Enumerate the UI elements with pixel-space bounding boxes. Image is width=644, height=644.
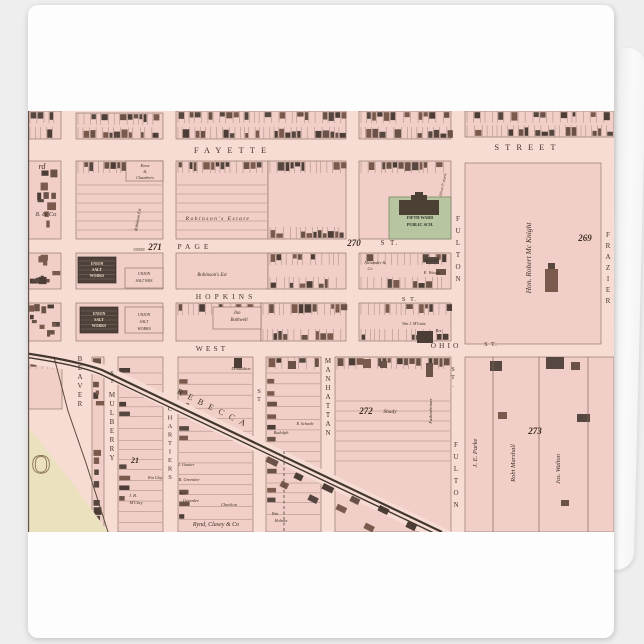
map-block-outline — [465, 357, 614, 532]
map-building — [226, 112, 232, 118]
ward-map-svg: FAYETTESTREETPAGES T.HOPKINSS T.WESTOHIO… — [28, 111, 614, 532]
map-block — [359, 111, 453, 139]
map-block-outline — [268, 161, 346, 239]
map-building — [96, 390, 99, 394]
map-building — [292, 304, 298, 313]
map-house — [548, 263, 555, 269]
map-building — [429, 112, 435, 118]
map-building — [29, 305, 34, 311]
map-building — [128, 114, 133, 119]
map-label: SALT WKS — [136, 279, 153, 283]
map-block — [176, 253, 268, 289]
map-building — [41, 183, 48, 191]
map-building — [327, 333, 333, 340]
map-building — [119, 402, 126, 407]
map-building — [340, 133, 346, 138]
map-block — [28, 303, 61, 341]
map-building — [372, 112, 376, 120]
map-building — [592, 131, 596, 136]
map-building — [30, 315, 34, 319]
map-building — [442, 254, 446, 262]
map-block — [176, 161, 268, 239]
map-building — [349, 358, 355, 365]
map-building — [278, 331, 281, 340]
map-building — [549, 130, 554, 136]
map-building — [319, 284, 324, 288]
map-building — [419, 304, 424, 313]
map-building — [278, 162, 285, 170]
map-block — [268, 253, 346, 289]
map-building — [245, 133, 248, 138]
map-house — [490, 361, 502, 371]
map-building — [330, 132, 334, 138]
map-building — [301, 232, 305, 238]
map-block — [465, 357, 614, 532]
map-label: FRAZIER — [605, 231, 610, 305]
map-building — [440, 134, 446, 138]
map-building — [335, 304, 339, 312]
map-building — [271, 230, 275, 238]
map-building — [43, 192, 48, 199]
map-building — [139, 114, 142, 119]
map-building — [223, 130, 228, 138]
map-building — [313, 232, 316, 238]
map-building — [121, 129, 127, 137]
map-label: J. E. Parke — [472, 438, 479, 467]
map-building — [426, 281, 432, 287]
map-building — [101, 114, 107, 120]
map-building — [226, 162, 230, 167]
map-label: Robinson's Estate — [185, 216, 251, 222]
map-label: Charlton — [221, 502, 238, 507]
map-building — [276, 358, 281, 363]
map-label: Chambers — [136, 175, 154, 180]
map-label: Hon. Robert Mc Knight — [524, 222, 533, 295]
map-label: UNION — [133, 248, 145, 252]
map-label: 271 — [147, 242, 162, 252]
map-building — [269, 358, 275, 367]
map-building — [269, 304, 274, 313]
map-building — [367, 112, 371, 119]
map-block — [92, 357, 104, 532]
map-label: S T. — [380, 239, 399, 247]
map-label: UNION — [91, 262, 104, 266]
map-label: R. Greenlee — [178, 477, 200, 482]
map-building — [424, 112, 428, 116]
map-label: FAYETTE — [194, 145, 272, 155]
map-label: UNION — [93, 312, 106, 316]
map-building — [369, 162, 375, 170]
map-building — [329, 112, 334, 121]
map-building — [41, 306, 46, 313]
map-building — [393, 280, 399, 288]
map-building — [153, 133, 159, 138]
map-building — [119, 476, 130, 481]
map-building — [508, 129, 513, 135]
map-label: J. B. — [129, 493, 137, 498]
product-mockup: FAYETTESTREETPAGES T.HOPKINSS T.WESTOHIO… — [0, 0, 644, 644]
map-building — [203, 162, 210, 169]
map-building — [398, 162, 403, 169]
map-label: OHIO — [431, 341, 462, 350]
map-building — [199, 304, 205, 311]
map-building — [357, 358, 363, 365]
map-building — [340, 232, 344, 237]
map-building — [307, 281, 313, 288]
map-label: 269 — [577, 233, 592, 243]
map-building — [393, 162, 397, 167]
map-building — [598, 128, 601, 135]
map-building — [566, 127, 570, 136]
map-building — [271, 283, 276, 288]
map-building — [428, 131, 432, 137]
map-label: Wm J. M'Guire — [402, 322, 426, 326]
map-building — [372, 129, 378, 138]
map-label: 272 — [358, 406, 373, 416]
map-building — [46, 221, 49, 228]
map-building — [257, 162, 261, 167]
map-block — [268, 161, 346, 239]
greeting-card: FAYETTESTREETPAGES T.HOPKINSS T.WESTOHIO… — [28, 5, 614, 638]
map-building — [267, 391, 274, 396]
map-building — [561, 112, 567, 118]
map-building — [333, 162, 339, 170]
map-label: 8. & Co — [36, 211, 58, 218]
map-building — [419, 112, 422, 120]
map-building — [230, 133, 234, 138]
map-building — [397, 358, 403, 364]
map-building — [420, 162, 423, 169]
map-building — [84, 162, 88, 167]
map-label: 273 — [527, 426, 542, 436]
map-building — [190, 162, 193, 169]
map-building — [280, 112, 285, 118]
map-building — [47, 129, 52, 137]
map-label: Rob — [178, 491, 187, 496]
map-building — [388, 279, 392, 288]
map-label: Jno — [234, 311, 242, 316]
map-building — [315, 358, 319, 367]
map-building — [34, 304, 40, 311]
map-label: WORKS — [137, 326, 150, 331]
map-building — [256, 130, 259, 137]
map-school-building — [415, 192, 423, 196]
map-block — [28, 161, 61, 239]
map-label: Res. — [435, 329, 443, 333]
map-building — [114, 132, 120, 138]
map-label: S T. — [484, 342, 497, 348]
map-label: HOPKINS — [196, 292, 257, 301]
map-print: FAYETTESTREETPAGES T.HOPKINSS T.WESTOHIO… — [28, 111, 614, 532]
map-building — [179, 426, 189, 431]
map-building — [395, 129, 401, 138]
map-building — [300, 284, 305, 288]
map-building — [141, 132, 144, 138]
map-building — [50, 170, 57, 178]
map-building — [444, 358, 450, 365]
map-building — [94, 457, 99, 464]
map-label: STREET — [494, 142, 561, 152]
map-block-outline — [266, 357, 321, 532]
map-building — [448, 130, 453, 138]
map-building — [267, 414, 276, 419]
map-building — [338, 358, 344, 366]
map-block — [176, 111, 346, 139]
map-building — [271, 254, 275, 262]
map-house — [426, 363, 433, 377]
map-label: Wm Clay — [148, 475, 163, 480]
map-label: PAGE — [178, 242, 213, 251]
map-label: Shady — [383, 409, 397, 415]
map-building — [129, 132, 132, 138]
map-building — [211, 162, 214, 170]
map-building — [190, 112, 194, 117]
map-block — [465, 163, 601, 344]
map-building — [94, 470, 99, 475]
map-block — [76, 113, 163, 139]
map-building — [436, 162, 442, 167]
map-building — [425, 304, 428, 308]
map-building — [94, 481, 99, 488]
map-building — [285, 132, 290, 137]
map-building — [362, 335, 365, 340]
map-building — [179, 379, 187, 384]
map-building — [418, 133, 422, 138]
map-building — [437, 334, 441, 340]
map-building — [179, 112, 184, 119]
map-building — [444, 112, 449, 118]
map-label: WORKS — [90, 274, 105, 278]
map-building — [474, 112, 480, 118]
map-building — [434, 130, 439, 138]
map-building — [144, 114, 147, 122]
map-label: UNION — [138, 271, 151, 276]
map-building — [388, 358, 391, 362]
map-building — [313, 304, 317, 311]
map-block-outline — [176, 161, 268, 239]
map-building — [325, 279, 328, 288]
map-building — [89, 162, 93, 171]
map-building — [265, 112, 271, 117]
map-building — [305, 112, 308, 120]
map-label: R. Schacht — [295, 421, 314, 426]
map-building — [290, 283, 293, 288]
map-building — [38, 112, 44, 118]
map-building — [91, 114, 95, 119]
map-building — [52, 271, 60, 275]
map-building — [244, 162, 250, 169]
map-building — [511, 112, 517, 120]
map-building — [475, 130, 481, 136]
map-label: SALT — [92, 268, 102, 272]
map-building — [47, 333, 50, 337]
map-label: UNION — [138, 312, 151, 317]
map-block — [465, 111, 614, 137]
map-building — [318, 230, 322, 238]
map-building — [93, 382, 99, 387]
map-building — [51, 193, 56, 199]
map-label: Knox — [139, 163, 149, 168]
map-building — [40, 325, 45, 329]
map-building — [234, 112, 239, 117]
map-building — [416, 358, 421, 366]
map-label: E. Woods — [423, 270, 441, 275]
map-building — [299, 358, 305, 362]
map-building — [267, 498, 275, 503]
map-label: S T. — [402, 296, 418, 303]
map-building — [315, 131, 321, 138]
map-building — [295, 162, 300, 166]
map-building — [31, 112, 36, 118]
map-building — [405, 162, 411, 171]
map-building — [221, 162, 225, 169]
map-building — [299, 304, 303, 313]
map-building — [412, 162, 418, 170]
map-building — [320, 333, 326, 339]
map-building — [209, 112, 213, 119]
map-building — [276, 233, 282, 237]
map-building — [41, 276, 44, 283]
map-building — [267, 402, 277, 407]
map-building — [542, 132, 548, 136]
map-label: Bothwell — [230, 318, 248, 323]
map-building — [573, 112, 576, 116]
map-building — [274, 333, 277, 340]
map-building — [382, 162, 385, 169]
map-label: Robt Marshall — [510, 444, 517, 483]
map-building — [84, 131, 89, 138]
map-building — [47, 202, 56, 210]
map-building — [119, 412, 130, 417]
map-building — [32, 320, 37, 323]
map-label: Alexander & — [363, 260, 386, 265]
map-label: Co — [368, 266, 373, 271]
map-building — [117, 162, 120, 168]
map-house — [546, 357, 564, 369]
map-building — [519, 129, 523, 136]
map-house — [380, 361, 387, 368]
map-building — [331, 304, 334, 309]
map-building — [47, 305, 53, 309]
map-block — [28, 253, 61, 289]
map-building — [220, 112, 225, 116]
map-building — [591, 112, 596, 117]
map-building — [104, 162, 109, 168]
map-building — [424, 162, 427, 168]
map-building — [94, 450, 102, 456]
map-building — [119, 464, 126, 469]
map-house — [545, 269, 558, 292]
map-building — [429, 304, 432, 312]
map-school-building — [399, 200, 439, 215]
map-building — [267, 469, 276, 474]
map-label: 270 — [346, 238, 361, 248]
map-house — [288, 361, 296, 369]
map-label: O — [32, 450, 51, 479]
map-building — [283, 334, 287, 340]
map-house — [498, 412, 507, 419]
map-building — [386, 304, 390, 313]
map-building — [323, 130, 329, 137]
map-building — [384, 112, 389, 121]
map-building — [50, 112, 53, 120]
map-building — [52, 323, 56, 326]
map-building — [279, 129, 284, 138]
map-label: Donaldson — [230, 366, 251, 371]
map-building — [607, 132, 613, 136]
map-building — [434, 358, 438, 365]
map-building — [443, 334, 449, 340]
map-label: SALT — [140, 319, 150, 324]
map-building — [179, 162, 182, 167]
map-building — [404, 112, 409, 117]
map-label: Robinson's Est — [196, 273, 227, 278]
map-label: rd — [39, 162, 47, 171]
map-building — [297, 131, 300, 138]
map-building — [41, 170, 48, 175]
map-label: WORKS — [92, 324, 107, 328]
map-building — [298, 254, 302, 259]
map-building — [286, 162, 290, 171]
map-label: J. Gunter — [178, 462, 195, 467]
map-label: BEAVER — [77, 355, 82, 408]
map-label: Rudolph — [273, 430, 290, 435]
map-label: FIFTH WARD — [407, 215, 434, 220]
map-label: Jos. Walton — [555, 454, 562, 484]
map-building — [120, 114, 126, 120]
map-building — [335, 112, 340, 118]
map-label: 21 — [130, 456, 139, 465]
map-building — [306, 233, 312, 238]
map-block — [261, 303, 347, 341]
map-label: WEST — [196, 344, 228, 353]
map-house — [363, 359, 371, 368]
map-building — [179, 304, 182, 311]
map-building — [341, 162, 346, 168]
map-building — [292, 131, 296, 137]
map-building — [386, 162, 391, 169]
map-building — [119, 485, 129, 490]
map-building — [179, 514, 184, 519]
map-building — [305, 304, 312, 312]
map-building — [32, 279, 37, 282]
map-label: Fashenheimer — [428, 398, 433, 424]
map-building — [134, 114, 138, 118]
map-building — [154, 114, 160, 120]
map-block — [266, 357, 321, 532]
map-building — [276, 254, 281, 260]
map-building — [291, 162, 294, 168]
map-building — [534, 112, 539, 117]
map-building — [38, 199, 44, 202]
map-building — [275, 131, 278, 138]
map-building — [297, 112, 303, 116]
map-building — [302, 335, 308, 340]
map-building — [119, 496, 124, 501]
map-building — [412, 335, 415, 340]
map-house — [571, 362, 580, 370]
map-building — [447, 304, 452, 311]
map-building — [43, 260, 47, 266]
map-building — [341, 304, 347, 310]
map-building — [439, 358, 442, 367]
map-building — [109, 133, 112, 138]
map-building — [409, 358, 414, 364]
map-building — [195, 112, 201, 117]
map-label: SALT — [94, 318, 104, 322]
map-building — [267, 379, 274, 384]
map-building — [377, 112, 382, 116]
